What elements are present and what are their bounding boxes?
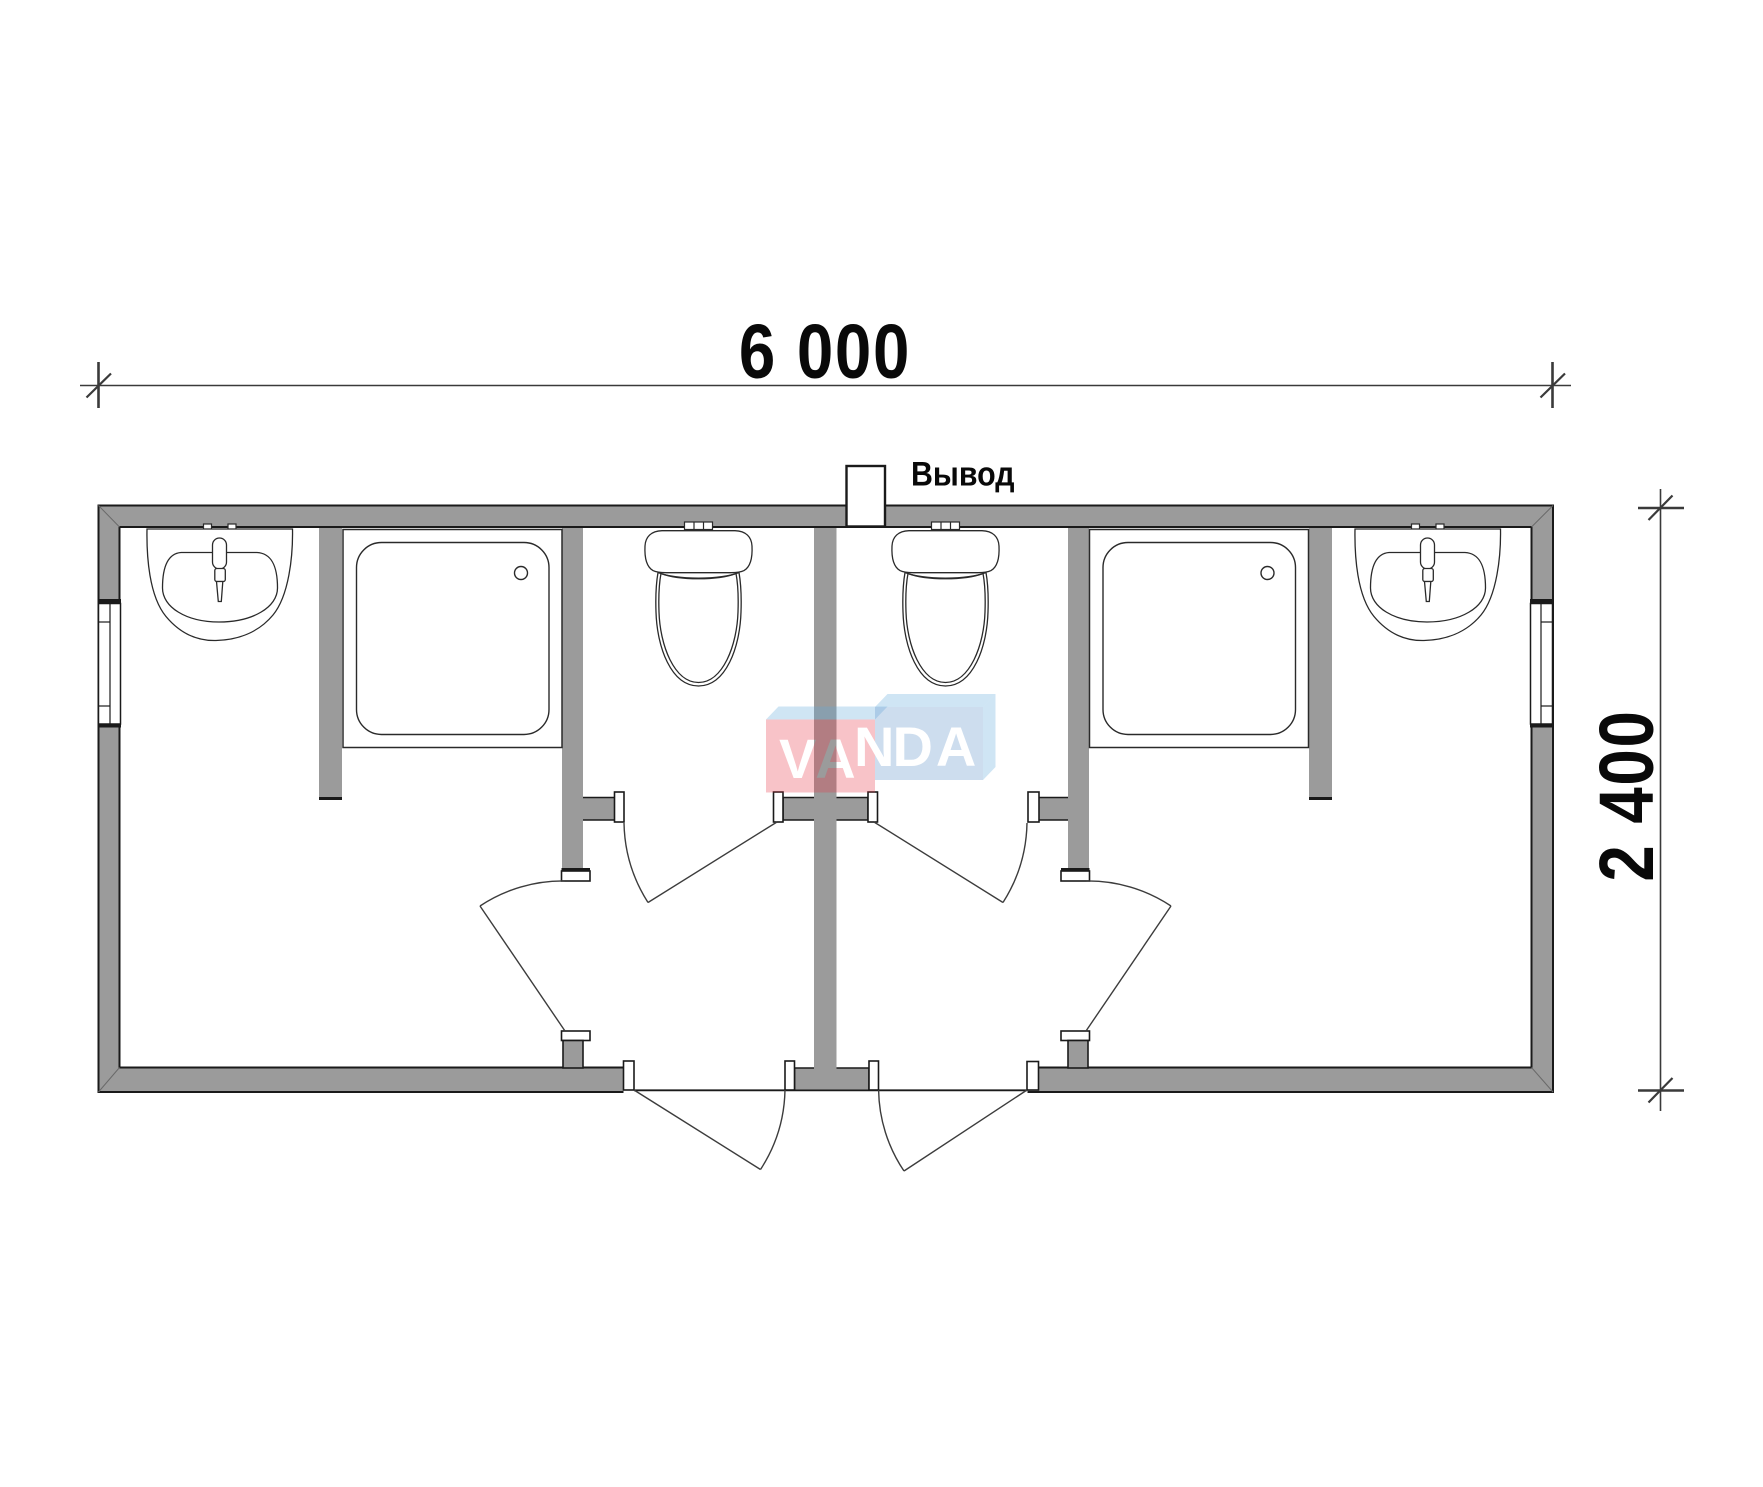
svg-text:2 400: 2 400	[1584, 709, 1670, 881]
svg-text:6 000: 6 000	[739, 309, 911, 395]
svg-text:Вывод: Вывод	[911, 455, 1015, 493]
